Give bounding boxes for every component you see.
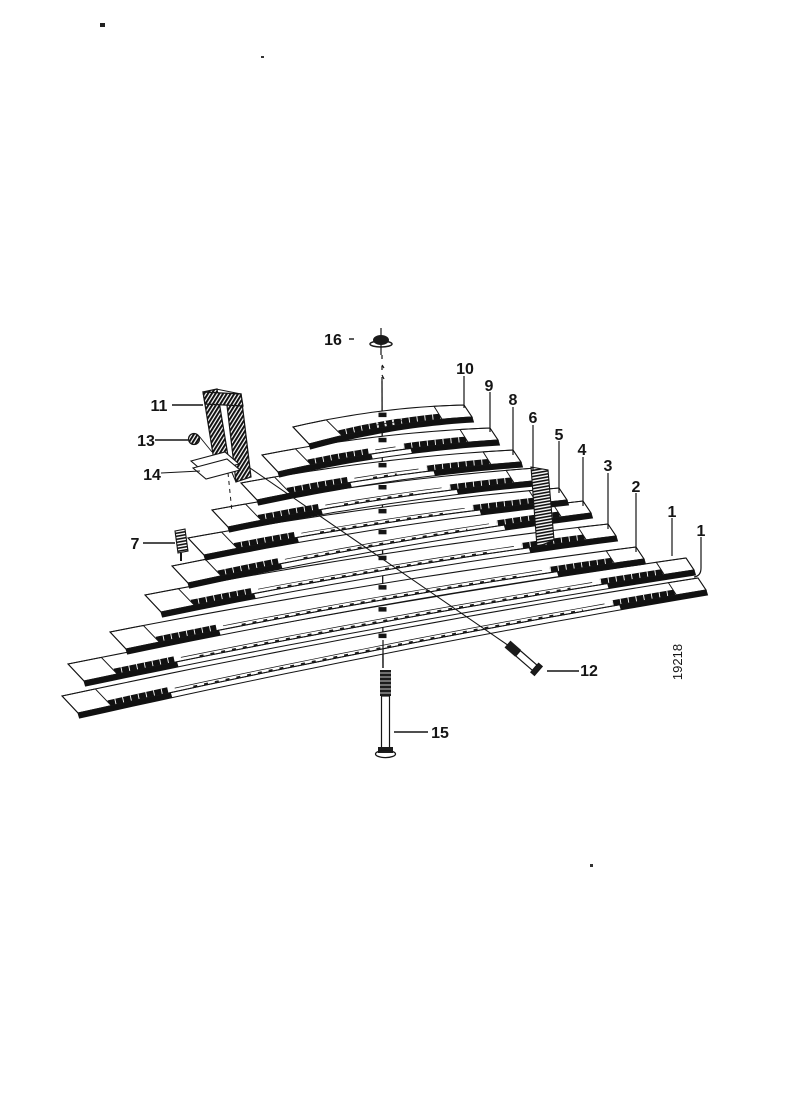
- svg-text:3: 3: [604, 458, 613, 475]
- svg-text:6: 6: [529, 410, 538, 427]
- svg-text:19218: 19218: [670, 644, 685, 680]
- svg-text:10: 10: [456, 361, 474, 378]
- svg-text:11: 11: [151, 398, 168, 415]
- svg-text:5: 5: [555, 427, 564, 444]
- svg-text:9: 9: [485, 378, 494, 395]
- svg-text:7: 7: [131, 536, 140, 553]
- svg-text:1: 1: [668, 504, 677, 521]
- svg-text:14: 14: [143, 467, 161, 484]
- svg-text:13: 13: [137, 433, 155, 450]
- svg-text:2: 2: [632, 479, 641, 496]
- svg-text:16: 16: [324, 332, 342, 349]
- svg-text:1: 1: [697, 523, 706, 540]
- svg-text:8: 8: [509, 392, 518, 409]
- svg-text:12: 12: [580, 663, 598, 680]
- svg-text:4: 4: [578, 442, 587, 459]
- svg-text:15: 15: [431, 725, 449, 742]
